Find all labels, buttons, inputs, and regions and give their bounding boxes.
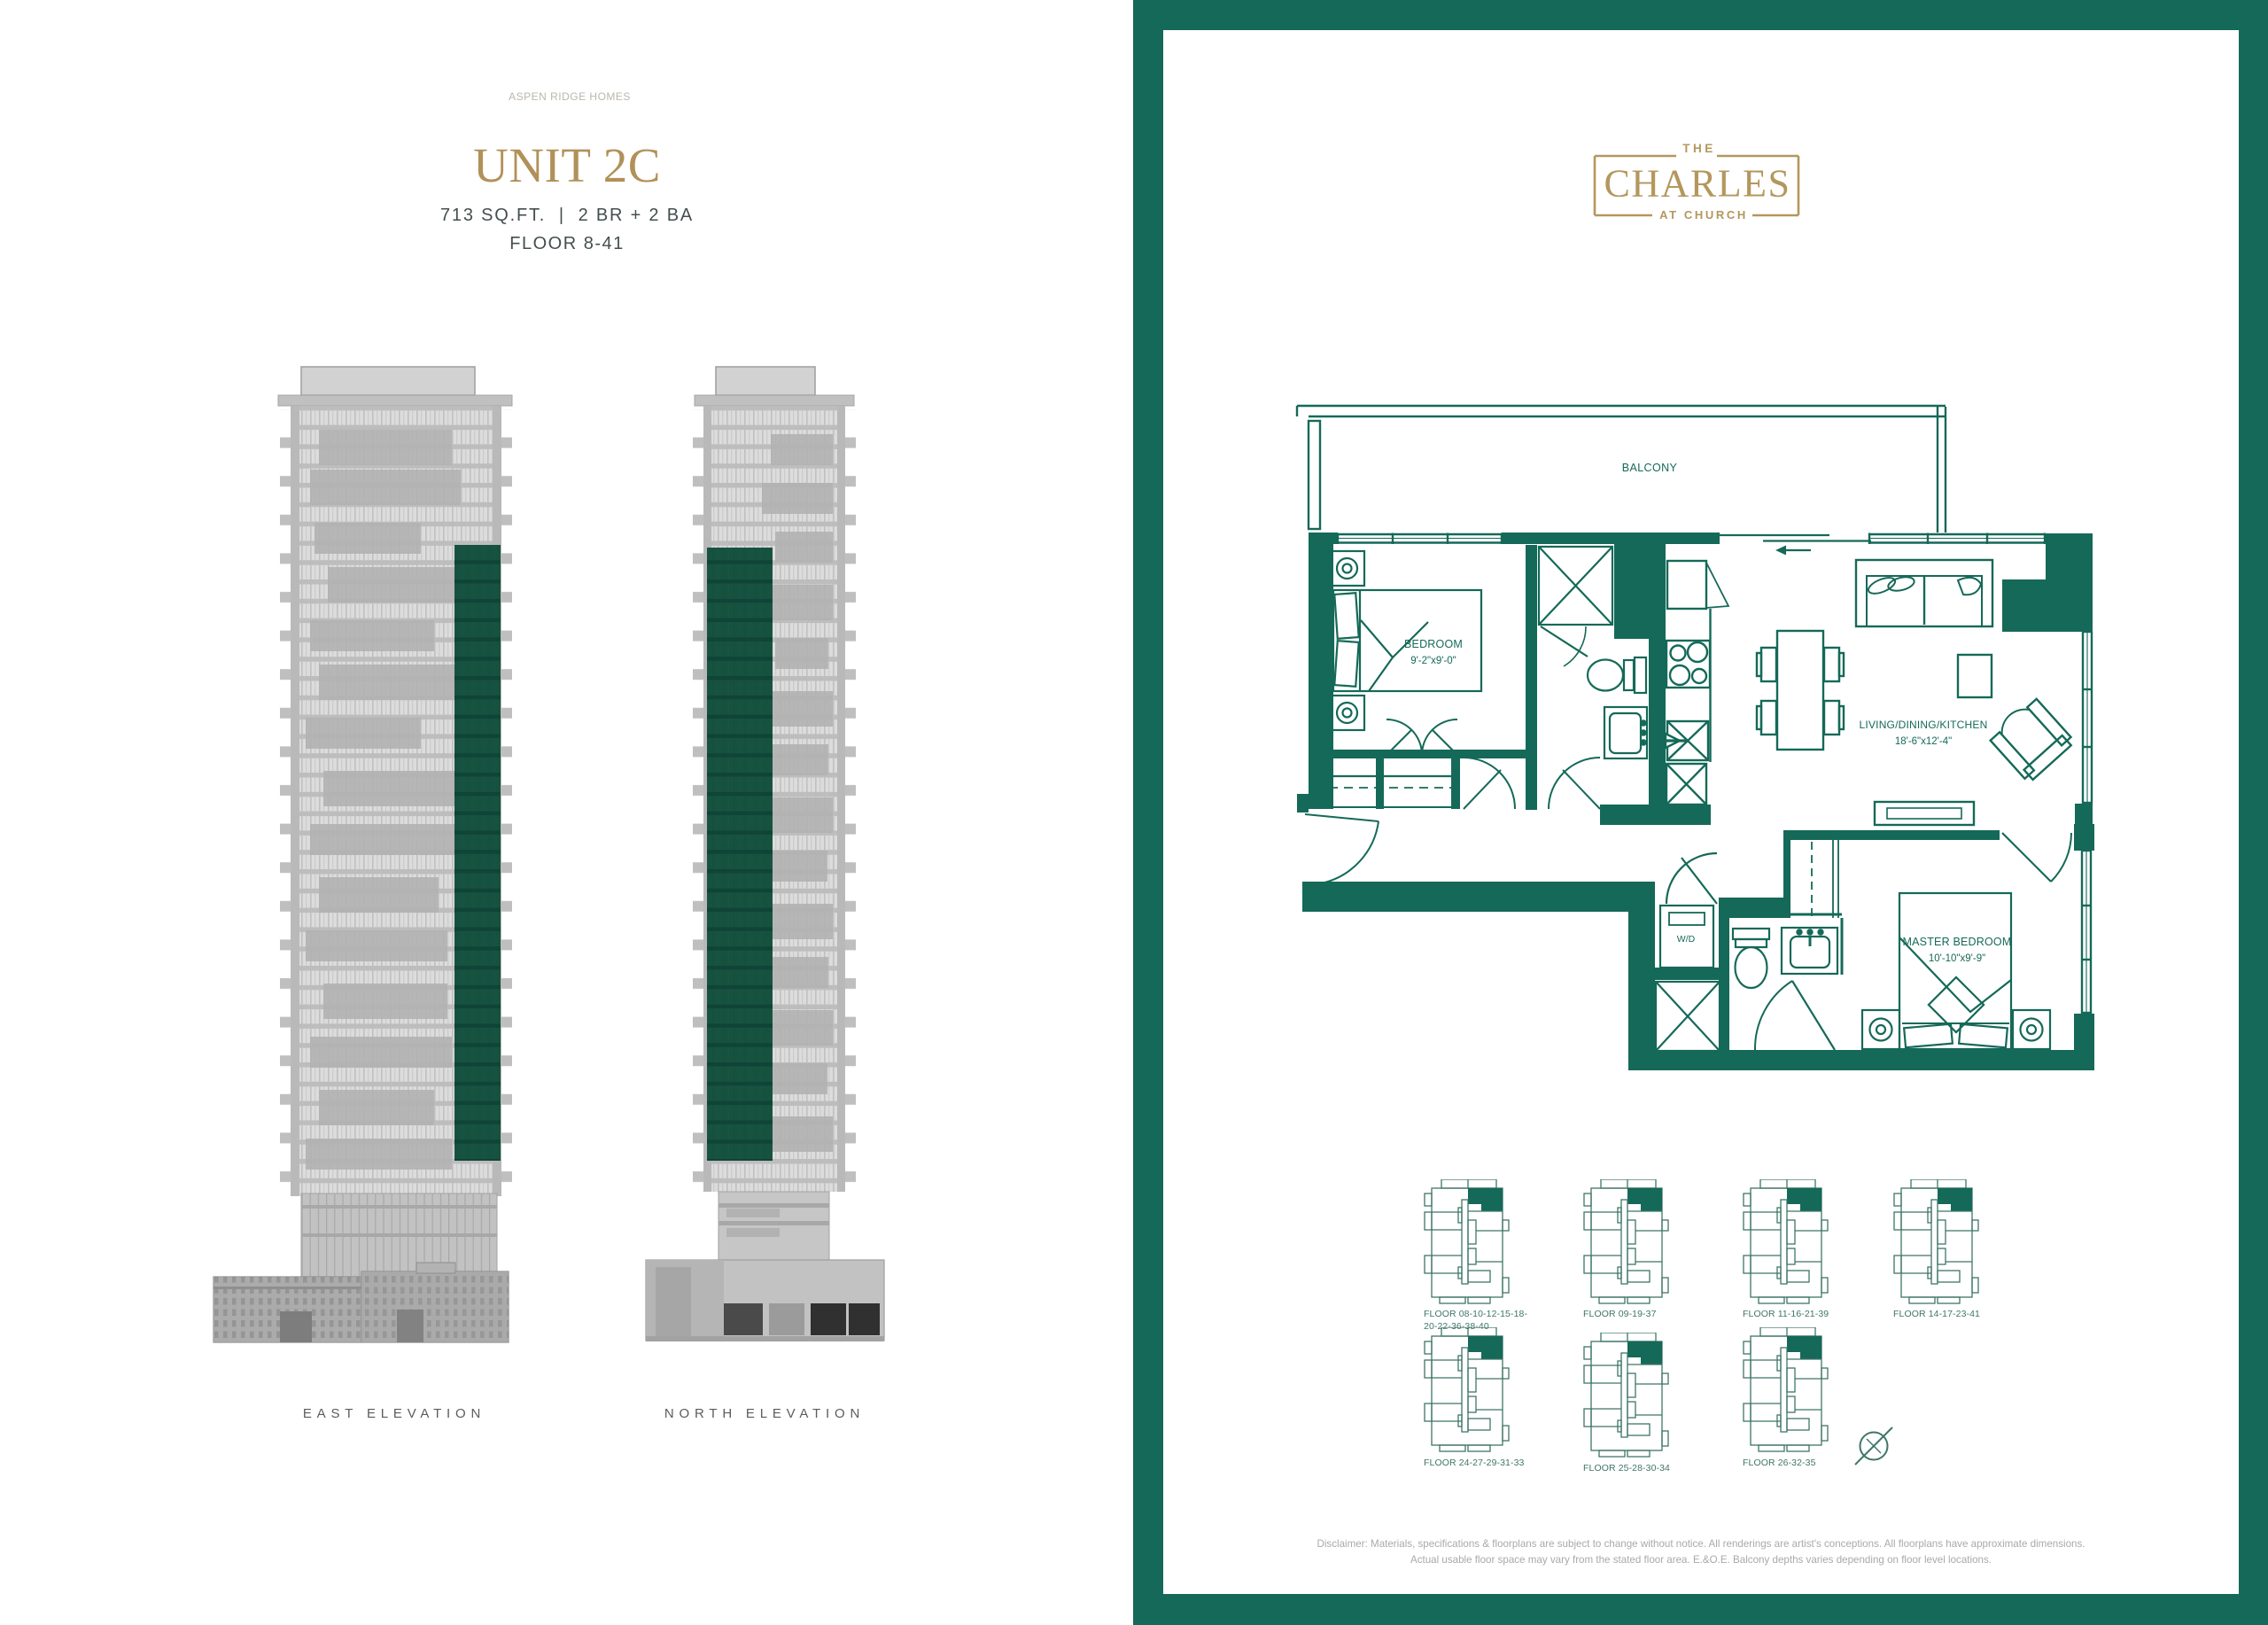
svg-text:18'-6"x12'-4": 18'-6"x12'-4" xyxy=(1895,736,1952,747)
svg-text:CHARLES: CHARLES xyxy=(1604,162,1791,206)
svg-text:LIVING/DINING/KITCHEN: LIVING/DINING/KITCHEN xyxy=(1860,719,1988,731)
svg-text:BALCONY: BALCONY xyxy=(1622,462,1678,474)
svg-text:MASTER BEDROOM: MASTER BEDROOM xyxy=(1903,936,2012,948)
svg-text:THE: THE xyxy=(1682,142,1716,155)
svg-text:BEDROOM: BEDROOM xyxy=(1404,638,1463,650)
svg-text:AT CHURCH: AT CHURCH xyxy=(1659,208,1748,222)
svg-text:10'-10"x9'-9": 10'-10"x9'-9" xyxy=(1929,953,1985,964)
svg-text:W/D: W/D xyxy=(1677,934,1696,945)
svg-text:9'-2"x9'-0": 9'-2"x9'-0" xyxy=(1410,656,1456,666)
